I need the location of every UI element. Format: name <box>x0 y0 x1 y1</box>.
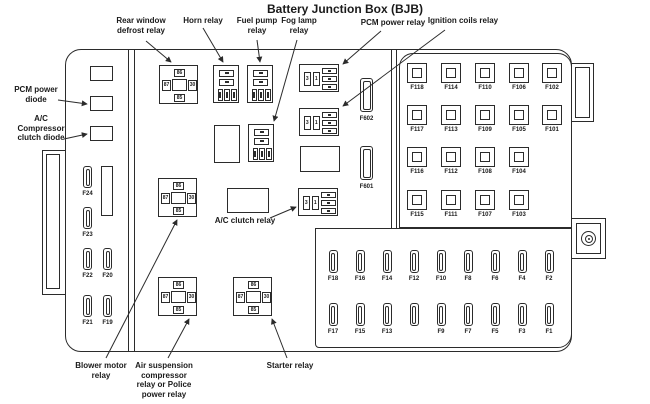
fuse-F108 <box>475 147 495 167</box>
fog-lamp-relay <box>248 124 274 162</box>
fuse-unlabeled <box>410 303 419 326</box>
starter-relay: 86858730 <box>233 277 272 316</box>
fuse-F20-label: F20 <box>94 273 122 279</box>
fuse-F18-inner <box>331 253 335 271</box>
fuse-F4-label: F4 <box>508 276 536 282</box>
pcm-power-relay-pin-3: 3 <box>304 72 311 86</box>
fuse-F104-inner <box>514 152 524 162</box>
fuel-pump-relay-pad-bottom-3 <box>265 89 271 101</box>
fuel-pump-relay <box>247 65 273 103</box>
fuse-F17-label: F17 <box>319 329 347 335</box>
blower-motor-relay-pin-87: 87 <box>161 193 170 204</box>
starter-relay-pin-87: 87 <box>236 292 245 303</box>
fuse-F9 <box>437 303 446 326</box>
fuse-F115-label: F115 <box>403 212 431 218</box>
label-ac-compressor-clutch-diode: A/C Compressor clutch diode <box>16 114 66 143</box>
fuse-F12-label: F12 <box>400 276 428 282</box>
ac-clutch-relay-pin-1: 1 <box>312 196 319 210</box>
fuse-F113-inner <box>446 110 456 120</box>
rear-window-defrost-relay-pin-30: 30 <box>188 80 197 91</box>
fuse-F101-label: F101 <box>538 127 566 133</box>
fuse-F18 <box>329 250 338 273</box>
fuse-F111 <box>441 190 461 210</box>
fuse-F10 <box>437 250 446 273</box>
fuse-F601 <box>360 146 373 180</box>
fuse-F9-inner <box>439 306 443 324</box>
fuse-F16 <box>356 250 365 273</box>
label-fuel-pump-relay: Fuel pump relay <box>235 16 279 35</box>
horn-relay-pad-top-1 <box>219 70 234 77</box>
fuse-F108-inner <box>480 152 490 162</box>
fuse-F117-inner <box>412 110 422 120</box>
fuse-F8-inner <box>466 253 470 271</box>
fuse-F107-inner <box>480 195 490 205</box>
fuse-F3-label: F3 <box>508 329 536 335</box>
fuse-F12 <box>410 250 419 273</box>
fuse-F20-inner <box>106 251 110 268</box>
fuse-F116 <box>407 147 427 167</box>
horn-relay-pad-bottom-1 <box>218 89 224 101</box>
fuse-F7 <box>464 303 473 326</box>
fuse-F16-label: F16 <box>346 276 374 282</box>
rear-window-defrost-relay-pin-86: 86 <box>174 69 185 77</box>
fuse-F102 <box>542 63 562 83</box>
fuse-F5-inner <box>493 306 497 324</box>
pcm-power-relay: 31 <box>299 64 339 92</box>
fuse-F104 <box>509 147 529 167</box>
ac-clutch-relay-pad-3 <box>321 208 336 214</box>
ignition-coils-relay-pin-1: 1 <box>313 116 320 130</box>
ac-clutch-relay-pad-2 <box>321 200 336 206</box>
fuse-unlabeled-inner <box>412 306 416 324</box>
blower-motor-relay-pin-85: 85 <box>173 207 184 215</box>
fuse-F117-label: F117 <box>403 127 431 133</box>
left-mount-bracket <box>42 150 67 295</box>
fuse-F24-inner <box>86 169 90 186</box>
fuse-F13 <box>383 303 392 326</box>
starter-relay-coil-slot <box>246 291 261 303</box>
rear-window-defrost-relay-pin-87: 87 <box>162 80 171 91</box>
label-fog-lamp-relay: Fog lamp relay <box>279 16 319 35</box>
blank-rect-left-column <box>101 166 113 216</box>
horn-relay <box>213 65 239 103</box>
fog-lamp-relay-pad-bottom-2 <box>259 148 265 160</box>
ignition-coils-relay-pin-3: 3 <box>304 116 311 130</box>
fuse-F17-inner <box>331 306 335 324</box>
label-pcm-power-relay: PCM power relay <box>358 18 428 28</box>
fuse-F110-inner <box>480 68 490 78</box>
fuse-F4-inner <box>520 253 524 271</box>
fuse-F7-label: F7 <box>454 329 482 335</box>
rear-window-defrost-relay: 86858730 <box>159 65 198 104</box>
air-suspension-relay-pin-87: 87 <box>161 292 170 303</box>
fuse-F107 <box>475 190 495 210</box>
fuse-F105-label: F105 <box>505 127 533 133</box>
label-rear-window-defrost-relay: Rear window defrost relay <box>114 16 168 35</box>
fuse-F601-inner <box>363 149 371 178</box>
starter-relay-pin-30: 30 <box>262 292 271 303</box>
starter-relay-pin-86: 86 <box>248 281 259 289</box>
air-suspension-relay-pin-30: 30 <box>187 292 196 303</box>
ground-stud-box <box>571 218 606 259</box>
ignition-coils-relay-pad-2 <box>322 120 337 126</box>
fuse-F111-label: F111 <box>437 212 465 218</box>
fuse-F116-inner <box>412 152 422 162</box>
fuse-F109 <box>475 105 495 125</box>
fuse-F9-label: F9 <box>427 329 455 335</box>
fuse-F103 <box>509 190 529 210</box>
pcm-power-relay-pad-1 <box>322 68 337 74</box>
fog-lamp-relay-pad-bottom-1 <box>253 148 259 160</box>
ac-clutch-relay-pad-1 <box>321 192 336 198</box>
ac-clutch-relay: 31 <box>298 188 338 216</box>
fuse-F112-label: F112 <box>437 169 465 175</box>
fuse-F1-label: F1 <box>535 329 563 335</box>
fog-lamp-relay-pad-top-2 <box>254 138 269 145</box>
air-suspension-relay-coil-slot <box>171 291 186 303</box>
ignition-coils-relay-pad-1 <box>322 112 337 118</box>
fuel-pump-relay-pad-top-1 <box>253 70 268 77</box>
fuse-F118 <box>407 63 427 83</box>
ignition-coils-relay-pad-3 <box>322 128 337 134</box>
fuse-F109-label: F109 <box>471 127 499 133</box>
fuse-F117 <box>407 105 427 125</box>
fuse-F3 <box>518 303 527 326</box>
fuse-F8 <box>464 250 473 273</box>
blank-slot-right-column <box>300 146 340 172</box>
fuse-F5-label: F5 <box>481 329 509 335</box>
fuse-F21-inner <box>86 298 90 315</box>
horn-relay-pad-bottom-2 <box>224 89 230 101</box>
fuse-F10-label: F10 <box>427 276 455 282</box>
fuse-F110 <box>475 63 495 83</box>
divider-right-b <box>396 49 397 228</box>
label-ac-clutch-relay: A/C clutch relay <box>210 216 280 226</box>
fuse-F102-label: F102 <box>538 85 566 91</box>
divider-left-b <box>134 49 135 352</box>
fuse-F113-label: F113 <box>437 127 465 133</box>
fuse-F18-label: F18 <box>319 276 347 282</box>
fuse-F6 <box>491 250 500 273</box>
fuel-pump-relay-pad-bottom-2 <box>258 89 264 101</box>
fuse-F112 <box>441 147 461 167</box>
fuse-F17 <box>329 303 338 326</box>
blank-diode-slot <box>90 66 113 81</box>
side-tab-connector-inner <box>575 67 590 118</box>
fuse-F1-inner <box>547 306 551 324</box>
air-suspension-relay: 86858730 <box>158 277 197 316</box>
diagram-title: Battery Junction Box (BJB) <box>225 2 465 16</box>
air-suspension-relay-pin-85: 85 <box>173 306 184 314</box>
fuse-F13-inner <box>385 306 389 324</box>
divider-left-a <box>128 49 129 352</box>
fog-lamp-relay-pad-bottom-3 <box>266 148 272 160</box>
fuse-F109-inner <box>480 110 490 120</box>
fuse-F6-label: F6 <box>481 276 509 282</box>
fuse-F24 <box>83 166 92 188</box>
label-horn-relay: Horn relay <box>178 16 228 26</box>
fuse-F15 <box>356 303 365 326</box>
fuse-F1 <box>545 303 554 326</box>
fuse-F24-label: F24 <box>74 191 102 197</box>
fuse-F2 <box>545 250 554 273</box>
blower-motor-relay-pin-30: 30 <box>187 193 196 204</box>
fuse-F2-label: F2 <box>535 276 563 282</box>
bjb-diagram: Battery Junction Box (BJB) Rear window d… <box>0 0 650 404</box>
fuse-F19-label: F19 <box>94 320 122 326</box>
side-tab-connector <box>571 63 594 122</box>
fuse-F23 <box>83 207 92 229</box>
fuse-F8-label: F8 <box>454 276 482 282</box>
fuse-F602-label: F602 <box>353 116 381 122</box>
fuse-F112-inner <box>446 152 456 162</box>
pcm-power-relay-pin-1: 1 <box>313 72 320 86</box>
fuse-F19 <box>103 295 112 317</box>
horn-relay-pad-top-2 <box>219 79 234 86</box>
fuse-F19-inner <box>106 298 110 315</box>
fuse-F22-inner <box>86 251 90 268</box>
fuse-F115-inner <box>412 195 422 205</box>
label-air-suspension-relay: Air suspension compressor relay or Polic… <box>134 361 194 399</box>
fuse-F118-inner <box>412 68 422 78</box>
fuse-F113 <box>441 105 461 125</box>
fuel-pump-relay-pad-top-2 <box>253 79 268 86</box>
fuse-F106-inner <box>514 68 524 78</box>
rear-window-defrost-relay-coil-slot <box>172 79 187 91</box>
air-suspension-relay-pin-86: 86 <box>173 281 184 289</box>
fuse-F103-label: F103 <box>505 212 533 218</box>
fuse-F14-inner <box>385 253 389 271</box>
pcm-power-relay-pad-3 <box>322 84 337 90</box>
fuse-F602-inner <box>363 81 371 110</box>
fuse-F15-inner <box>358 306 362 324</box>
label-blower-motor-relay: Blower motor relay <box>74 361 128 380</box>
fuse-F105-inner <box>514 110 524 120</box>
fuse-F111-inner <box>446 195 456 205</box>
label-ignition-coils-relay: Ignition coils relay <box>423 16 503 26</box>
fuse-F7-inner <box>466 306 470 324</box>
pcm-power-diode <box>90 96 113 111</box>
fuse-F12-inner <box>412 253 416 271</box>
fuse-F14-label: F14 <box>373 276 401 282</box>
fuse-F6-inner <box>493 253 497 271</box>
fuse-F23-label: F23 <box>74 232 102 238</box>
starter-relay-pin-85: 85 <box>248 306 259 314</box>
fuse-F108-label: F108 <box>471 169 499 175</box>
fuse-F114-inner <box>446 68 456 78</box>
fuse-F23-inner <box>86 210 90 227</box>
fuse-F103-inner <box>514 195 524 205</box>
fuel-pump-relay-pad-bottom-1 <box>252 89 258 101</box>
ac-compressor-clutch-diode <box>90 126 113 141</box>
ac-clutch-relay-pin-3: 3 <box>303 196 310 210</box>
fuse-F116-label: F116 <box>403 169 431 175</box>
blank-slot-mid-lower <box>227 188 269 213</box>
fuse-F10-inner <box>439 253 443 271</box>
fuse-F20 <box>103 248 112 270</box>
left-mount-bracket-inner <box>46 154 60 289</box>
pcm-power-relay-pad-2 <box>322 76 337 82</box>
fuse-F22 <box>83 248 92 270</box>
fuse-F21 <box>83 295 92 317</box>
blower-motor-relay: 86858730 <box>158 178 197 217</box>
fuse-F102-inner <box>547 68 557 78</box>
fog-lamp-relay-pad-top-1 <box>254 129 269 136</box>
blank-slot-mid-upper <box>214 125 240 163</box>
fuse-F115 <box>407 190 427 210</box>
fuse-F16-inner <box>358 253 362 271</box>
fuse-F106-label: F106 <box>505 85 533 91</box>
fuse-F4 <box>518 250 527 273</box>
fuse-F114-label: F114 <box>437 85 465 91</box>
fuse-F601-label: F601 <box>353 184 381 190</box>
blower-motor-relay-coil-slot <box>171 192 186 204</box>
fuse-F106 <box>509 63 529 83</box>
fuse-F15-label: F15 <box>346 329 374 335</box>
fuse-F3-inner <box>520 306 524 324</box>
fuse-F14 <box>383 250 392 273</box>
fuse-F118-label: F118 <box>403 85 431 91</box>
ignition-coils-relay: 31 <box>299 108 339 136</box>
fuse-F5 <box>491 303 500 326</box>
ground-stud-icon <box>581 231 596 246</box>
fuse-F107-label: F107 <box>471 212 499 218</box>
fuse-F101-inner <box>547 110 557 120</box>
fuse-F602 <box>360 78 373 112</box>
rear-window-defrost-relay-pin-85: 85 <box>174 94 185 102</box>
label-pcm-power-diode: PCM power diode <box>10 85 62 104</box>
label-starter-relay: Starter relay <box>260 361 320 371</box>
fuse-F2-inner <box>547 253 551 271</box>
blower-motor-relay-pin-86: 86 <box>173 182 184 190</box>
fuse-F105 <box>509 105 529 125</box>
fuse-F101 <box>542 105 562 125</box>
divider-right-a <box>391 49 392 228</box>
fuse-F13-label: F13 <box>373 329 401 335</box>
fuse-F110-label: F110 <box>471 85 499 91</box>
fuse-F114 <box>441 63 461 83</box>
fuse-F104-label: F104 <box>505 169 533 175</box>
horn-relay-pad-bottom-3 <box>231 89 237 101</box>
